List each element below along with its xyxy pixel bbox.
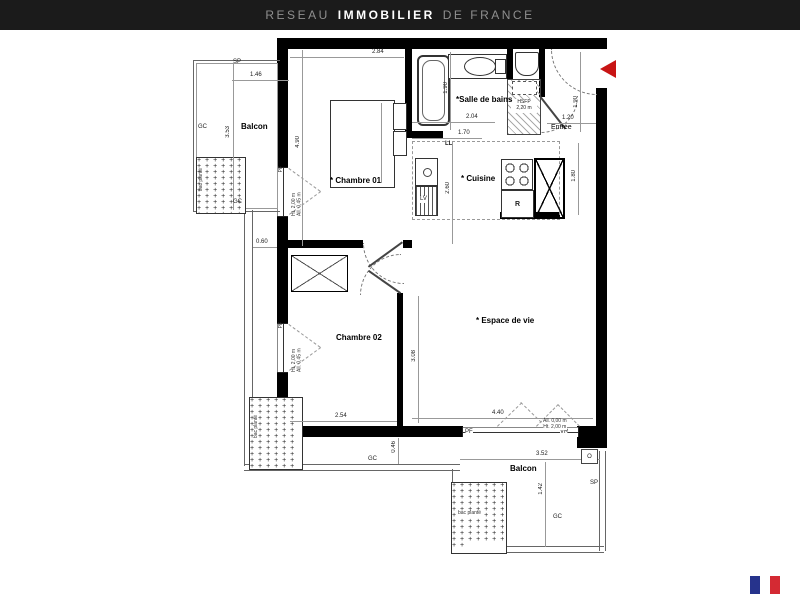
dim-bathroom-depth: 1.90 <box>443 82 449 94</box>
outdoor-light-box: O <box>581 449 598 464</box>
dim-entry-depth: 1.90 <box>573 96 579 108</box>
brand-text-de-france: DE FRANCE <box>443 8 535 22</box>
planter-label: bac planté <box>199 168 205 191</box>
dim-bedroom2-depth: 3.08 <box>411 350 417 362</box>
wall-bathroom-bottom <box>405 131 443 138</box>
planter-label: bac planté <box>458 511 481 517</box>
wall-bottom-right-block <box>577 426 607 448</box>
window-sill-note: All. 0,45 m <box>298 168 304 216</box>
window-sill-note: All. 0,45 m <box>298 324 304 372</box>
balcony-bottom-right-railing <box>599 451 606 551</box>
gc-label: GC <box>553 514 562 521</box>
wall-bedroom2-right <box>397 293 403 426</box>
window-note-bedroom2: Ht. 2,00 m All. 0,45 m <box>292 324 303 372</box>
dim-kitchen-depth: 2.60 <box>445 182 451 194</box>
dim-line <box>578 143 579 215</box>
wall-bottom <box>277 426 463 437</box>
window-pf-label: PF <box>279 322 285 328</box>
dim-kitchen-width: 1.70 <box>458 130 470 136</box>
brand-text-reseau: RESEAU <box>265 8 329 22</box>
fridge-label: R <box>515 201 520 208</box>
room-label-balcony-left: Balcon <box>241 122 268 131</box>
bed-pillow-line <box>381 103 382 183</box>
dim-bathroom-width: 2.04 <box>466 114 478 120</box>
dim-entry-width: 1.20 <box>562 115 574 121</box>
room-label-bedroom1: * Chambre 01 <box>330 176 381 185</box>
room-label-bedroom2: Chambre 02 <box>336 333 382 342</box>
gc-label: GC <box>368 456 377 463</box>
technical-shaft <box>534 158 565 219</box>
window-bedroom2 <box>277 323 288 373</box>
dim-line <box>302 50 303 246</box>
dim-balcony-left-depth: 3.53 <box>225 126 231 138</box>
room-label-kitchen: * Cuisine <box>461 174 495 183</box>
french-flag-icon <box>750 576 780 594</box>
brand-text-immobilier: IMMOBILIER <box>338 8 435 22</box>
window-swing-line <box>520 402 545 426</box>
footer-brand-bar: RESEAU IMMOBILIER DE FRANCE <box>0 0 800 30</box>
gc-label: GC <box>233 199 242 206</box>
dim-line <box>412 138 482 139</box>
dim-line <box>450 52 451 130</box>
dim-balcony-bottom-width: 3.52 <box>536 451 548 457</box>
room-label-entry: Entrée <box>551 124 572 131</box>
dim-line <box>290 57 404 58</box>
dim-bedroom1-width: 2.84 <box>372 49 384 55</box>
room-label-balcony-bottom: Balcon <box>510 464 537 473</box>
gc-label: GC <box>198 124 207 131</box>
dim-line <box>545 462 546 547</box>
dim-line <box>412 122 495 123</box>
closet-note-line2: 2,20 m <box>516 105 531 111</box>
dim-bedroom1-depth: 4.90 <box>295 136 301 148</box>
dim-kitchen-side: 1.80 <box>571 170 577 182</box>
entrance-arrow-icon <box>600 60 616 78</box>
wall-top <box>277 38 607 49</box>
window-pf-label: PF <box>465 429 473 436</box>
dim-living-width: 4.40 <box>492 410 504 416</box>
dim-line <box>398 438 399 464</box>
dim-line <box>580 52 581 132</box>
room-label-bathroom: *Salle de bains <box>456 95 512 104</box>
living-height-note: Ht. 2,00 m <box>543 425 567 431</box>
outdoor-light-label: O <box>587 454 592 460</box>
fridge: R <box>501 190 534 218</box>
dim-line <box>547 123 596 124</box>
shutter-vr-label: VR <box>560 429 568 436</box>
sp-label: SP <box>233 59 241 65</box>
washbasin-tap <box>495 59 506 74</box>
dim-balcony-left-width: 1.46 <box>250 72 262 78</box>
room-label-living: * Espace de vie <box>476 316 534 325</box>
dim-line <box>290 421 397 422</box>
closet-shelf <box>512 81 537 95</box>
window-note-living: All. 0,00 m Ht. 2,00 m <box>543 419 567 430</box>
bed <box>330 100 395 188</box>
stove <box>501 159 533 190</box>
planter-box <box>451 482 507 554</box>
dim-balcony-bottom-offset: 0.46 <box>391 441 397 453</box>
wall-right <box>596 88 607 448</box>
dim-line <box>452 142 453 244</box>
dim-balcony-offset: 0.60 <box>256 239 268 245</box>
wall-bedroom-divider-stub <box>403 240 412 248</box>
sp-label: SP <box>590 480 598 487</box>
wall-bedroom-divider <box>277 240 363 248</box>
dim-line <box>233 63 234 210</box>
washbasin <box>464 57 496 76</box>
dishwasher-label: LV <box>419 196 428 203</box>
closet-height-note: HSFP 2,20 m <box>511 99 537 113</box>
entry-door-arc <box>551 49 597 95</box>
oven <box>415 158 438 186</box>
wardrobe <box>291 255 348 292</box>
dim-line <box>460 459 600 460</box>
dim-bedroom2-width: 2.54 <box>335 413 347 419</box>
window-note-bedroom1: Ht. 2,00 m All. 0,45 m <box>292 168 303 216</box>
dim-balcony-bottom-depth: 1.42 <box>538 483 544 495</box>
planter-label: bac planté <box>254 415 260 438</box>
dim-line <box>232 80 289 81</box>
window-pf-label: PF <box>279 166 285 172</box>
toilet <box>515 52 539 76</box>
wall-wc-niche-left <box>507 49 513 79</box>
floor-plan-page: HSFP 2,20 m R LV LL bac planté bac plant… <box>0 0 800 600</box>
nightstand <box>393 131 407 156</box>
dim-line <box>418 296 419 423</box>
dim-line <box>253 247 277 248</box>
nightstand <box>393 103 407 130</box>
